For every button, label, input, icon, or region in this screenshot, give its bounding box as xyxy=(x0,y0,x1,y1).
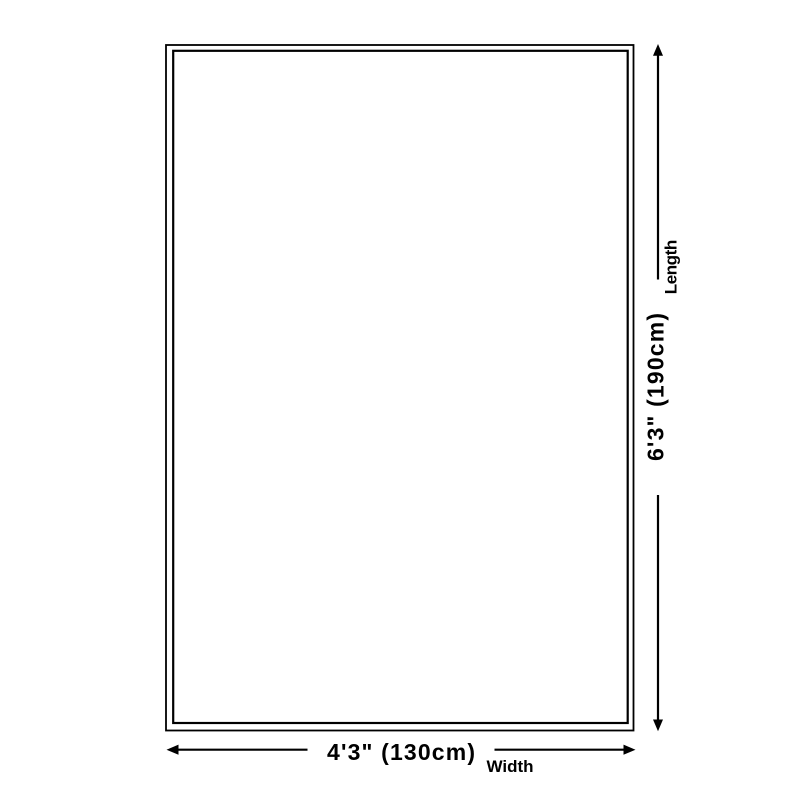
svg-text:Length: Length xyxy=(662,240,681,295)
svg-text:4'3" (130cm): 4'3" (130cm) xyxy=(327,739,475,765)
svg-text:6'3" (190cm): 6'3" (190cm) xyxy=(643,313,669,461)
svg-text:Width: Width xyxy=(487,757,534,776)
